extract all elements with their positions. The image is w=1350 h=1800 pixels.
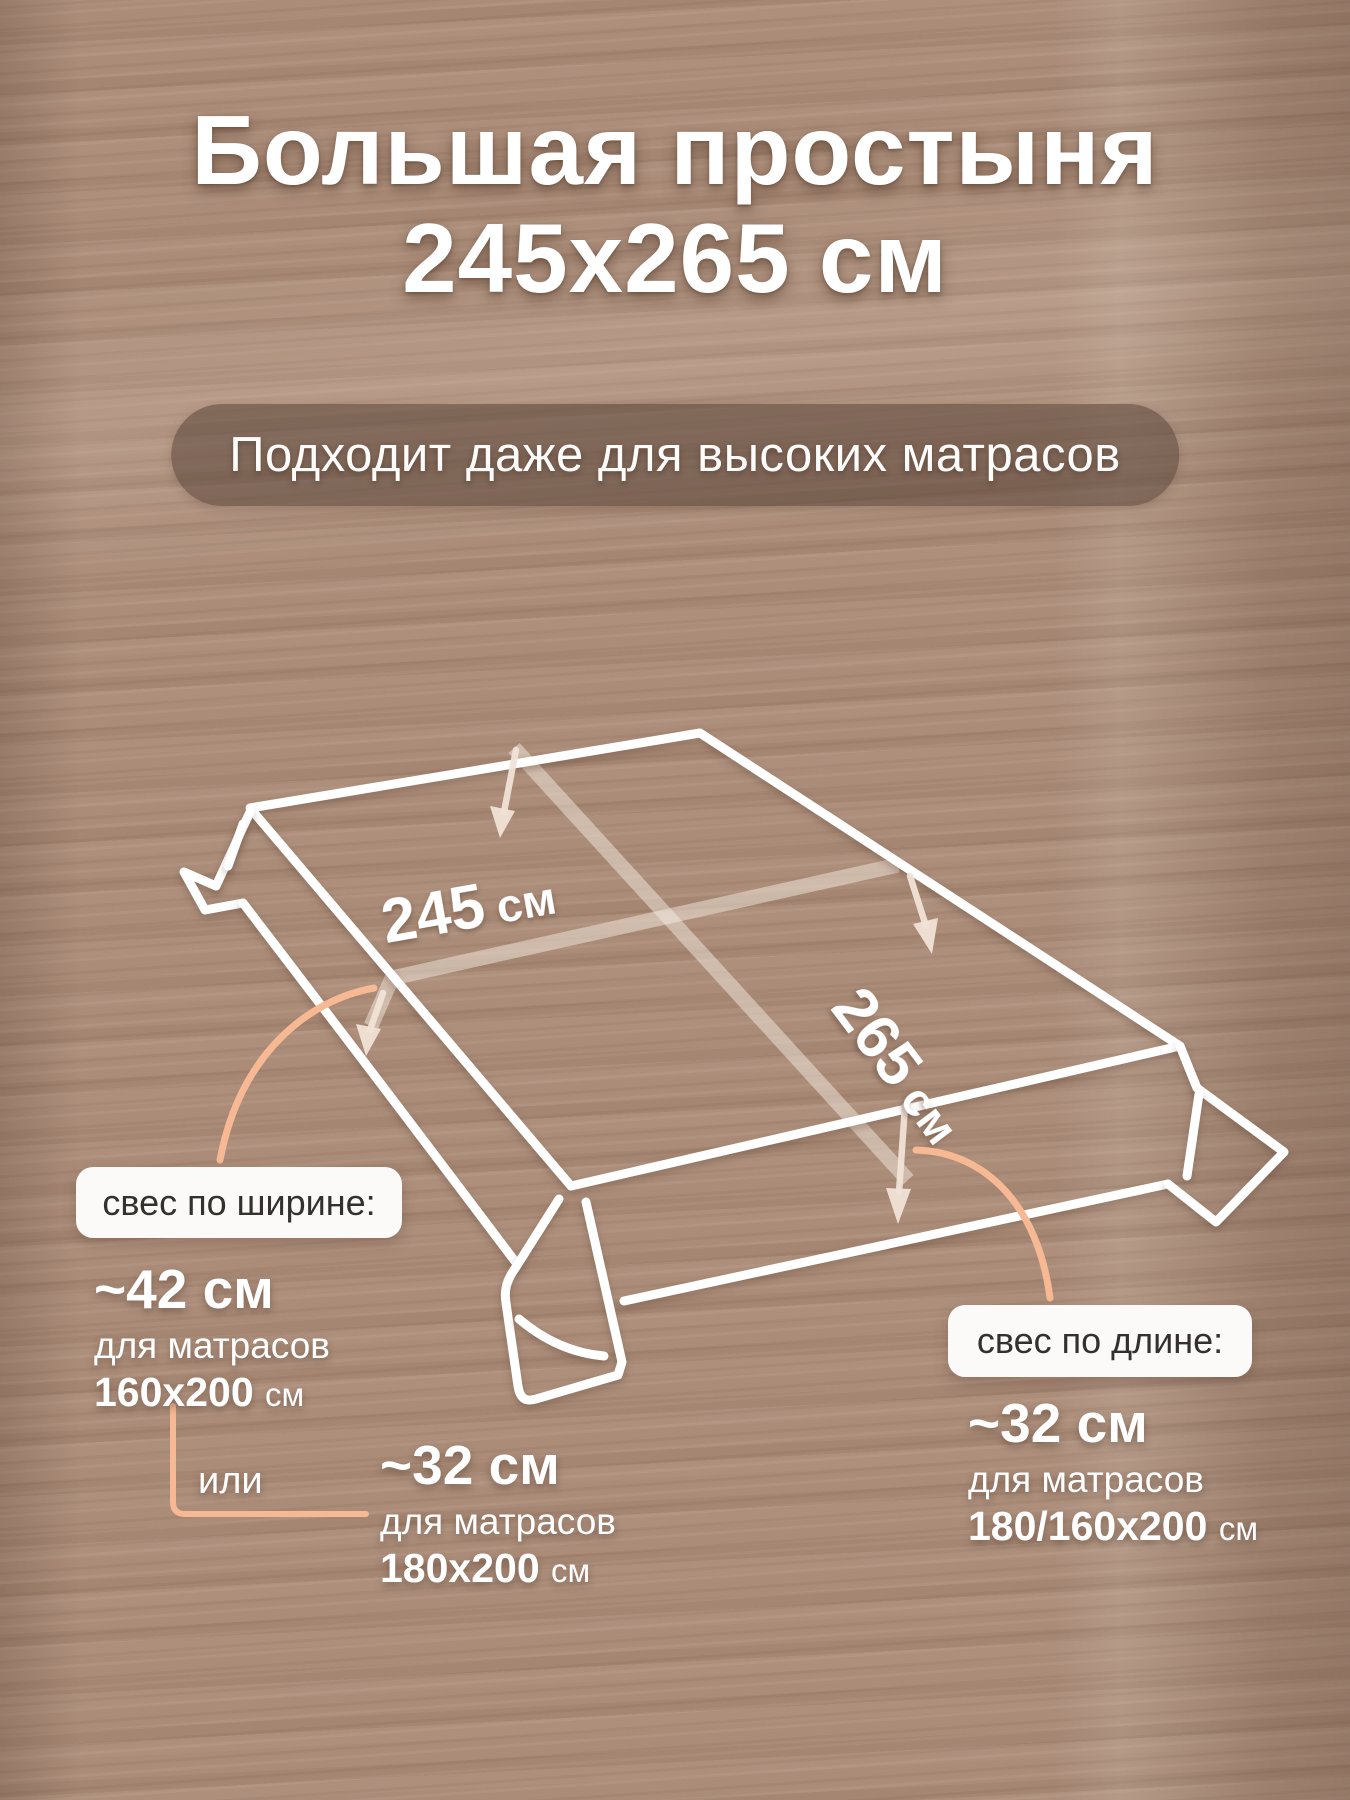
overhang-width-option1-value: ~42 см — [94, 1262, 330, 1317]
overhang-length-callout: свес по длине: — [948, 1305, 1252, 1377]
width-callout-connector — [220, 988, 374, 1160]
overhang-width-callout-label: свес по ширине: — [102, 1182, 375, 1224]
overhang-width-option1-size: 160х200 см — [94, 1372, 330, 1415]
or-separator: или — [198, 1460, 263, 1503]
size-value: 180х200 — [380, 1545, 540, 1591]
overhang-width-option1: ~42 см для матрасов 160х200 см — [94, 1262, 330, 1415]
right-edge-down-arrowhead-icon — [913, 918, 938, 954]
size-value: 180/160х200 — [968, 1503, 1207, 1549]
sheet-left-flap — [184, 872, 243, 910]
size-unit: см — [265, 1376, 304, 1413]
length-value: 265 — [818, 975, 935, 1099]
size-unit: см — [1219, 1510, 1258, 1547]
size-unit: см — [551, 1552, 590, 1589]
sheet-outline — [184, 733, 1284, 1400]
overhang-length-option-value: ~32 см — [968, 1396, 1258, 1451]
overhang-width-option2-for: для матрасов — [380, 1503, 616, 1540]
back-edge-down-arrow-icon — [504, 750, 516, 812]
overhang-width-option2: ~32 см для матрасов 180х200 см — [380, 1438, 616, 1591]
sheet-front-corner-drape — [505, 1199, 622, 1400]
front-edge-down-arrowhead-icon — [886, 1188, 911, 1224]
back-edge-down-arrowhead-icon — [490, 806, 515, 838]
overhang-length-option: ~32 см для матрасов 180/160х200 см — [968, 1396, 1258, 1549]
overhang-width-option2-value: ~32 см — [380, 1438, 616, 1493]
length-dimension-label: 265см — [818, 975, 978, 1156]
sheet-front-drape-crease — [519, 1319, 604, 1356]
length-measure-band — [514, 748, 908, 1180]
drape-arrows — [356, 750, 938, 1224]
sheet-right-side-edge — [1180, 1046, 1197, 1088]
size-value: 160х200 — [94, 1369, 254, 1415]
sheet-right-corner-drape — [1168, 1088, 1284, 1222]
width-value: 245 — [376, 871, 490, 957]
width-unit: см — [492, 871, 560, 933]
overhang-length-option-size: 180/160х200 см — [968, 1506, 1258, 1549]
overhang-length-option-for: для матрасов — [968, 1461, 1258, 1498]
sheet-right-drape-crease — [1187, 1094, 1199, 1176]
overhang-length-callout-label: свес по длине: — [977, 1320, 1223, 1362]
overhang-width-callout: свес по ширине: — [76, 1167, 402, 1238]
overhang-width-option2-size: 180х200 см — [380, 1548, 616, 1591]
product-infographic: Большая простыня 245х265 см Подходит даж… — [0, 0, 1350, 1800]
overhang-width-option1-for: для матрасов — [94, 1327, 330, 1364]
